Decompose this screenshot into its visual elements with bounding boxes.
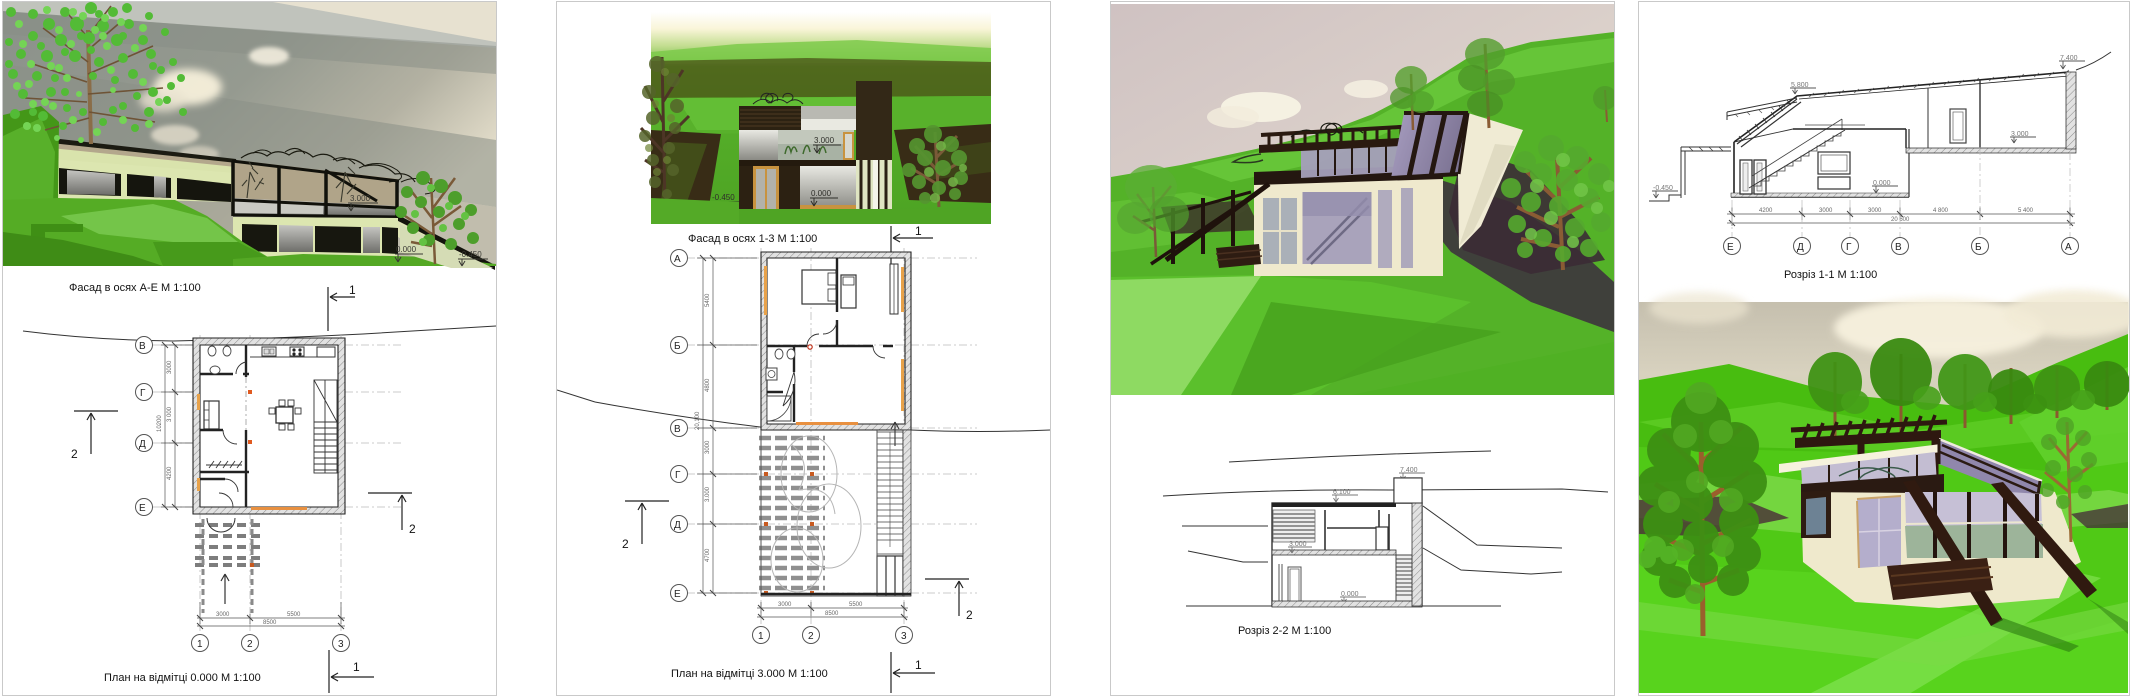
svg-text:-0.450: -0.450 <box>712 193 735 202</box>
svg-text:3000: 3000 <box>1819 208 1833 214</box>
svg-text:Д: Д <box>1797 242 1804 253</box>
svg-text:4800: 4800 <box>705 378 711 392</box>
svg-text:0.000: 0.000 <box>811 189 832 198</box>
svg-text:1: 1 <box>197 639 203 650</box>
svg-text:2: 2 <box>622 537 629 551</box>
svg-text:3000: 3000 <box>778 602 792 608</box>
svg-text:Г: Г <box>1846 242 1852 253</box>
svg-text:3000: 3000 <box>1868 208 1882 214</box>
svg-text:План на відмітці 3.000 М 1:: План на відмітці 3.000 М 1:100 <box>671 668 828 680</box>
svg-text:План на відмітці 0.000 М 1: План на відмітці 0.000 М 1:100 <box>104 672 261 684</box>
svg-text:В: В <box>674 424 681 435</box>
svg-text:Е: Е <box>139 503 146 514</box>
svg-text:Г: Г <box>140 388 146 399</box>
svg-text:В: В <box>139 341 146 352</box>
svg-text:2: 2 <box>966 608 973 622</box>
svg-text:20 600: 20 600 <box>1891 217 1910 223</box>
svg-text:3.000: 3.000 <box>705 486 711 502</box>
svg-text:2: 2 <box>71 447 78 461</box>
svg-text:10200: 10200 <box>157 415 163 432</box>
svg-text:5 400: 5 400 <box>2018 208 2034 214</box>
svg-text:4200: 4200 <box>1759 208 1773 214</box>
svg-text:20,100: 20,100 <box>695 411 701 430</box>
svg-text:3.000: 3.000 <box>814 136 835 145</box>
svg-text:0.000: 0.000 <box>396 245 417 254</box>
svg-text:4200: 4200 <box>167 466 173 480</box>
svg-text:Д: Д <box>139 439 146 450</box>
svg-text:Б: Б <box>1975 242 1982 253</box>
svg-text:-0.450: -0.450 <box>459 250 482 259</box>
svg-text:А: А <box>674 254 681 265</box>
svg-text:1: 1 <box>758 631 764 642</box>
svg-text:3: 3 <box>338 639 344 650</box>
svg-text:3000: 3000 <box>216 612 230 618</box>
svg-text:3 000: 3 000 <box>167 406 173 422</box>
svg-text:3000: 3000 <box>705 440 711 454</box>
svg-text:1: 1 <box>915 658 922 672</box>
svg-text:2: 2 <box>808 631 814 642</box>
svg-text:1: 1 <box>353 660 360 674</box>
svg-text:Розріз 1-1 М 1:100: Розріз 1-1 М 1:100 <box>1784 269 1877 281</box>
svg-text:Розріз 2-2 М 1:100: Розріз 2-2 М 1:100 <box>1238 625 1331 637</box>
svg-text:А: А <box>2065 242 2072 253</box>
svg-text:1: 1 <box>349 283 356 297</box>
svg-text:2: 2 <box>409 522 416 536</box>
svg-text:Е: Е <box>674 589 681 600</box>
svg-text:3.000: 3.000 <box>350 194 371 203</box>
svg-text:В: В <box>1895 242 1902 253</box>
svg-text:4 800: 4 800 <box>1933 208 1949 214</box>
svg-text:5500: 5500 <box>287 612 301 618</box>
svg-text:Д: Д <box>674 520 681 531</box>
svg-text:Е: Е <box>1727 242 1734 253</box>
svg-text:8500: 8500 <box>263 620 277 626</box>
svg-text:Г: Г <box>675 470 681 481</box>
svg-text:3000: 3000 <box>167 360 173 374</box>
svg-text:1: 1 <box>915 224 922 238</box>
svg-text:3: 3 <box>901 631 907 642</box>
svg-text:8500: 8500 <box>825 611 839 617</box>
svg-text:Фасад в осях 1-3 М 1:100: Фасад в осях 1-3 М 1:100 <box>688 233 817 245</box>
svg-text:5400: 5400 <box>705 293 711 307</box>
svg-text:4700: 4700 <box>705 548 711 562</box>
svg-text:2: 2 <box>247 639 253 650</box>
svg-text:Фасад в осях А-Е М 1:100: Фасад в осях А-Е М 1:100 <box>69 282 201 294</box>
svg-text:Б: Б <box>674 341 681 352</box>
svg-text:5500: 5500 <box>849 602 863 608</box>
